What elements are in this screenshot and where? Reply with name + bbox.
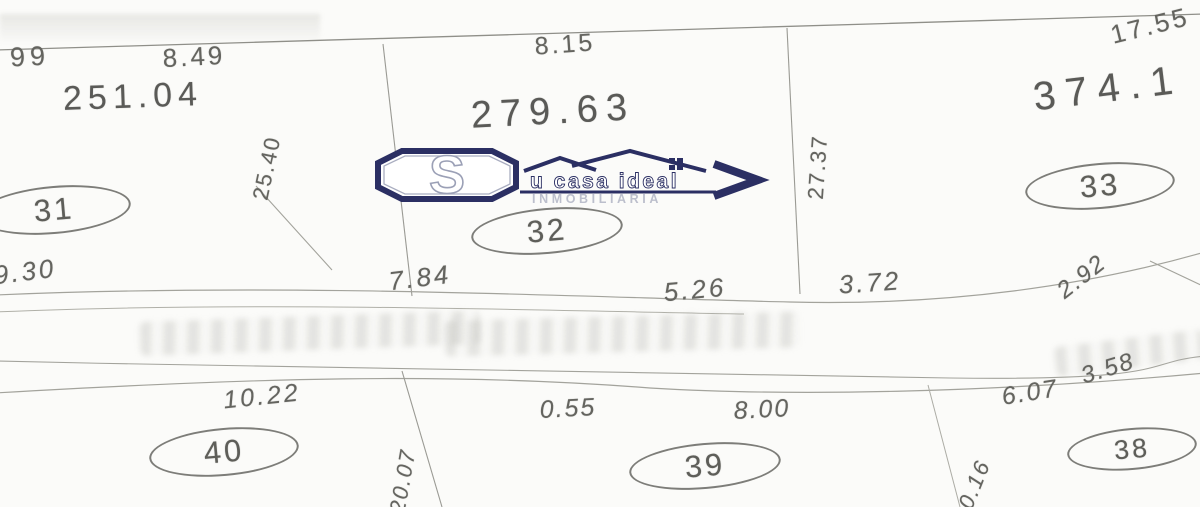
lot39-lot38-boundary-line: [928, 385, 960, 507]
dimension-label: 0.55: [539, 393, 597, 425]
lot-number: 38: [1113, 432, 1152, 466]
dimension-label: 99: [9, 40, 51, 73]
lot31-area-label: 251.04: [62, 75, 203, 119]
plat-map: 99 8.49 251.04 8.15 279.63 17.55 374.1 2…: [0, 0, 1200, 507]
lot32-area-label: 279.63: [470, 86, 636, 138]
lot-number: 31: [32, 190, 75, 229]
dimension-label: 3.72: [838, 265, 903, 300]
watermark-subtitle: INMOBILIARIA: [532, 192, 662, 205]
key-arrow-tip-icon: [714, 164, 758, 196]
street-edge-lower-1: [0, 356, 1200, 378]
dimension-label: 8.00: [733, 394, 791, 426]
lot33-corner-tick-line: [1150, 261, 1200, 287]
dimension-label: 8.49: [162, 40, 226, 74]
street-edge-upper-1: [0, 252, 1200, 302]
lot-number: 40: [202, 432, 245, 471]
lot-number: 39: [683, 446, 726, 485]
lot-number: 33: [1078, 166, 1121, 205]
watermark-name: u casa ideal: [530, 170, 679, 193]
lot32-lot33-boundary-line: [787, 28, 800, 294]
dimension-label: 5.26: [662, 272, 727, 308]
dimension-label: 27.37: [803, 134, 833, 201]
watermark-logo: S u casa ideal INMOBILIARIA: [372, 147, 772, 205]
dimension-label: 8.15: [534, 28, 597, 61]
watermark-initial: S: [429, 147, 465, 205]
lot-number: 32: [525, 211, 568, 250]
